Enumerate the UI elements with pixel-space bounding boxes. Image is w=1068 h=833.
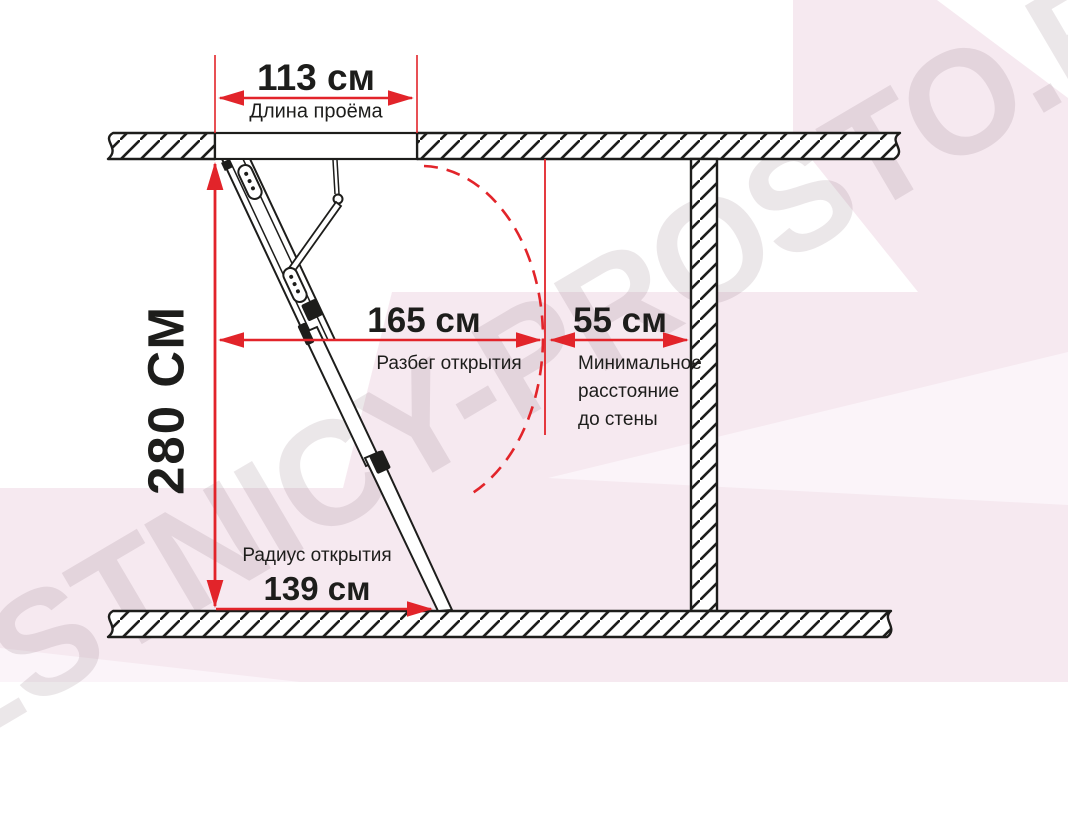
dim-caption-opening: Длина проёма [249, 101, 382, 124]
ceiling-right-slab [417, 133, 900, 159]
ceiling-left-slab [108, 133, 215, 159]
ceiling-opening [215, 133, 417, 159]
ceiling [108, 133, 900, 159]
dim-value-opening: 113 см [257, 57, 375, 99]
ladder-section-middle [303, 327, 380, 466]
folding-ladder [221, 159, 452, 611]
spring-arm [289, 202, 341, 272]
wall-caption-line-1: Минимальное [578, 350, 702, 378]
dim-caption-run: Разбег открытия [376, 353, 521, 375]
dim-value-wall-distance: 55 см [573, 301, 667, 341]
dim-value-radius: 139 см [264, 570, 371, 608]
arm-rod-line-1 [333, 160, 335, 194]
dim-caption-wall-distance: Минимальное расстояние до стены [578, 350, 702, 434]
wall-caption-line-2: расстояние [578, 378, 702, 406]
wall-caption-line-3: до стены [578, 406, 702, 434]
floor [108, 611, 891, 637]
dim-value-ceiling-height: 280 СМ [137, 305, 196, 495]
ladder-section-lower [365, 452, 452, 611]
dim-caption-radius: Радиус открытия [242, 545, 391, 567]
arm-rod-line-2 [337, 160, 339, 194]
dim-value-run: 165 см [367, 301, 480, 341]
attic-ladder-dimension-diagram: { "watermark": { "text": "LESTNICY-PROST… [0, 0, 1068, 682]
